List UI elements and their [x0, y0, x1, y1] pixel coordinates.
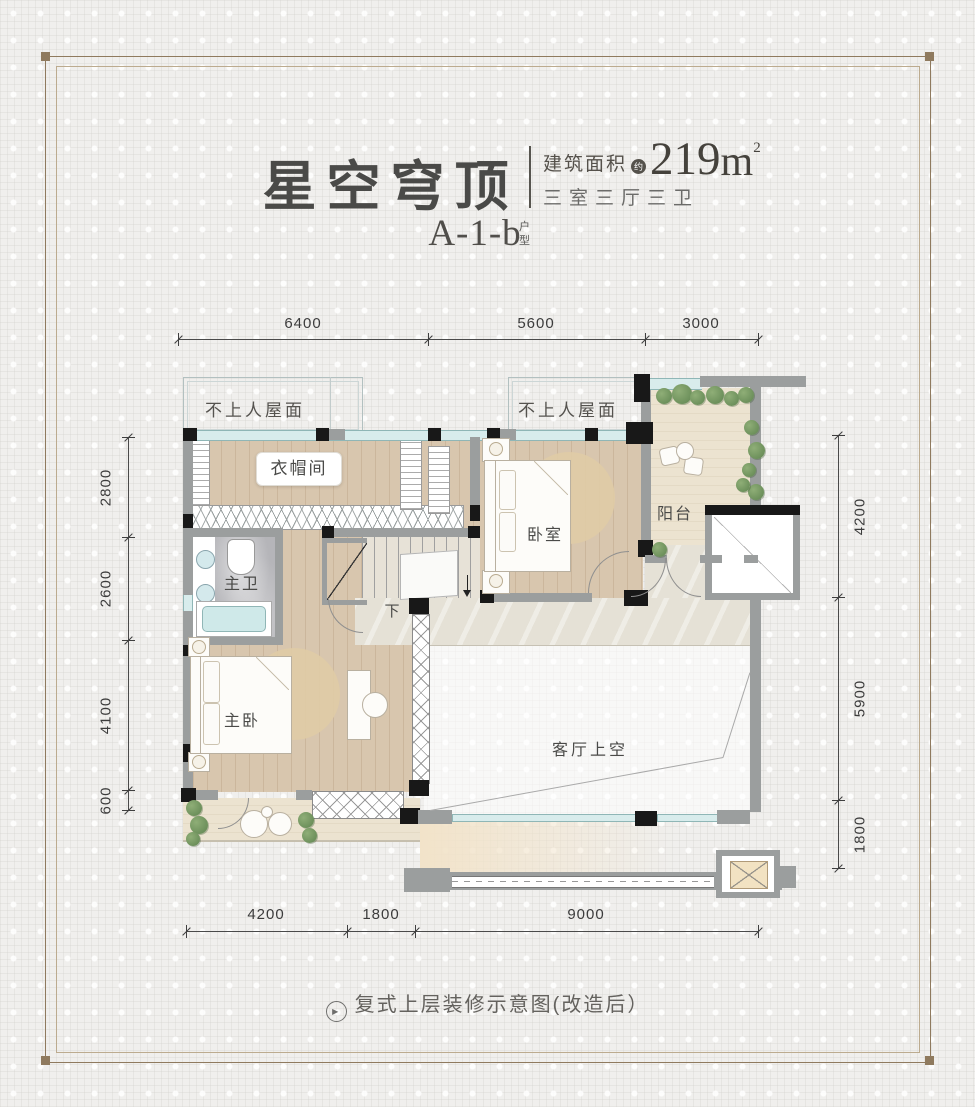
dim-label-bottom-1: 4200 — [216, 906, 316, 923]
wall-segment — [418, 810, 452, 824]
room-label-master-bath: 主卫 — [212, 570, 272, 594]
window-bath — [183, 595, 193, 611]
lamp-icon — [192, 755, 206, 769]
column-block — [634, 374, 650, 402]
dim-label-left-3: 4100 — [98, 686, 115, 746]
frame-corner-icon — [925, 52, 934, 61]
frame-corner-icon — [41, 1056, 50, 1065]
wall-segment — [183, 611, 193, 638]
room-label-cloakroom: 衣帽间 — [256, 452, 342, 486]
caption-text: 复式上层装修示意图(改造后） — [355, 994, 650, 1016]
duvet-fold-line — [534, 461, 568, 495]
room-label-roof-right: 不上人屋面 — [518, 396, 618, 421]
stair-landing-board — [400, 550, 458, 600]
sink-icon — [196, 550, 215, 569]
dim-label-bottom-3: 9000 — [536, 906, 636, 923]
dim-label-top-2: 5600 — [486, 315, 586, 332]
column-block — [585, 428, 598, 441]
column-block — [409, 598, 429, 614]
wall-segment — [641, 390, 651, 557]
duvet-fold-line — [256, 657, 289, 690]
room-label-roof-left: 不上人屋面 — [205, 396, 305, 421]
plant-icon — [298, 812, 314, 828]
dimension-line-left — [128, 437, 129, 810]
plant-icon — [302, 828, 317, 843]
room-label-master-bedroom: 主卧 — [212, 707, 272, 731]
dim-label-right-1: 4200 — [852, 487, 869, 547]
lower-floor-band — [420, 822, 675, 872]
dim-label-right-2: 5900 — [852, 669, 869, 729]
dim-label-bottom-2: 1800 — [331, 906, 431, 923]
area-superscript: 2 — [753, 140, 761, 157]
stair-down-label: 下 — [380, 600, 404, 621]
dim-label-right-3: 1800 — [852, 805, 869, 865]
wall-segment — [750, 600, 761, 812]
dimension-line-bottom — [186, 931, 758, 932]
lamp-icon — [489, 574, 503, 588]
wall-segment — [322, 528, 480, 537]
wall-segment — [404, 868, 450, 892]
lamp-icon — [192, 640, 206, 654]
dim-label-left-2: 2600 — [98, 559, 115, 619]
room-label-living-void: 客厅上空 — [528, 736, 652, 760]
unit-suffix-top: 户 — [519, 221, 530, 235]
plant-icon — [690, 390, 705, 405]
closet-rack — [400, 438, 422, 510]
play-icon: ▶ — [326, 1001, 347, 1022]
wall-segment — [183, 528, 283, 537]
floorplan-page: 星空穹顶 建筑面积 约 219 m 2 三室三厅三卫 A-1-b 户 型 640… — [0, 0, 975, 1107]
stair-arrow-icon — [463, 590, 471, 597]
plant-icon — [724, 391, 739, 406]
header-divider — [529, 146, 531, 208]
column-block — [400, 808, 420, 824]
dimension-line-top — [178, 339, 758, 340]
area-unit: m — [721, 141, 754, 183]
dim-label-left-4: 600 — [98, 771, 115, 831]
column-x-detail — [730, 861, 768, 889]
dim-label-left-1: 2800 — [98, 458, 115, 518]
plant-icon — [186, 800, 202, 816]
wall-segment — [183, 530, 193, 595]
window-glass-rail — [657, 814, 719, 822]
plant-icon — [738, 387, 754, 403]
frame-corner-icon — [925, 1056, 934, 1065]
unit-suffix-bottom: 型 — [519, 235, 530, 249]
column-block — [470, 505, 480, 521]
plant-icon — [736, 478, 750, 492]
stool-small — [261, 806, 273, 818]
column-block — [468, 526, 480, 538]
plant-icon — [744, 420, 759, 435]
lattice-window — [312, 791, 404, 819]
terrace-edge-line — [183, 840, 420, 842]
plant-icon — [652, 542, 667, 557]
wall-segment — [700, 555, 722, 563]
wall-segment — [275, 537, 283, 645]
window-lower — [452, 876, 714, 888]
plant-icon — [748, 484, 764, 500]
area-approx-badge: 约 — [631, 159, 646, 174]
closet-rack — [428, 446, 450, 514]
dimension-line-right — [838, 435, 839, 868]
column-block — [322, 526, 334, 538]
caption-row: ▶复式上层装修示意图(改造后） — [0, 988, 975, 1022]
lattice-wall — [412, 614, 430, 784]
wall-segment — [744, 555, 758, 563]
storage-closet — [322, 538, 367, 605]
stair-arrow-line — [467, 575, 468, 591]
window-dashed-line — [452, 881, 714, 882]
area-value: 219 — [650, 136, 721, 183]
plant-icon — [748, 442, 765, 459]
balcony-table — [676, 442, 694, 460]
column-block — [409, 780, 429, 796]
plant-icon — [656, 388, 672, 404]
page-title: 星空穹顶 — [248, 142, 533, 221]
column-block — [638, 422, 653, 444]
wall-segment — [329, 429, 345, 440]
unit-code: A-1-b — [375, 212, 575, 255]
dim-label-top-1: 6400 — [253, 315, 353, 332]
plant-icon — [706, 386, 724, 404]
elevator-top-wall — [705, 505, 800, 515]
unit-suffix: 户 型 — [519, 221, 530, 249]
window-glass-rail — [452, 814, 637, 822]
bathtub-icon — [202, 606, 266, 632]
window-band-top — [196, 430, 643, 441]
pillow — [203, 661, 220, 703]
wall-segment — [470, 437, 480, 507]
roof-divider-line — [330, 377, 331, 432]
wall-segment — [296, 790, 312, 800]
wall-segment — [196, 790, 218, 800]
spec-line: 三室三厅三卫 — [543, 183, 699, 210]
column-block — [635, 811, 657, 826]
plant-icon — [672, 384, 692, 404]
plant-icon — [742, 463, 756, 477]
room-label-bedroom: 卧室 — [513, 521, 577, 545]
area-label: 建筑面积 — [543, 149, 627, 183]
column-block — [183, 428, 197, 441]
column-block — [316, 428, 329, 441]
lamp-icon — [489, 442, 503, 456]
dim-label-top-3: 3000 — [651, 315, 751, 332]
area-row: 建筑面积 约 219 m 2 — [543, 136, 761, 183]
desk-chair — [362, 692, 388, 718]
wall-segment — [717, 810, 750, 824]
column-block — [428, 428, 441, 441]
plant-icon — [186, 832, 200, 846]
pillow — [499, 470, 516, 510]
frame-corner-icon — [41, 52, 50, 61]
living-void-area — [424, 645, 750, 816]
wall-segment — [780, 866, 796, 888]
room-label-balcony: 阳台 — [645, 500, 705, 524]
wall-segment — [480, 593, 592, 602]
